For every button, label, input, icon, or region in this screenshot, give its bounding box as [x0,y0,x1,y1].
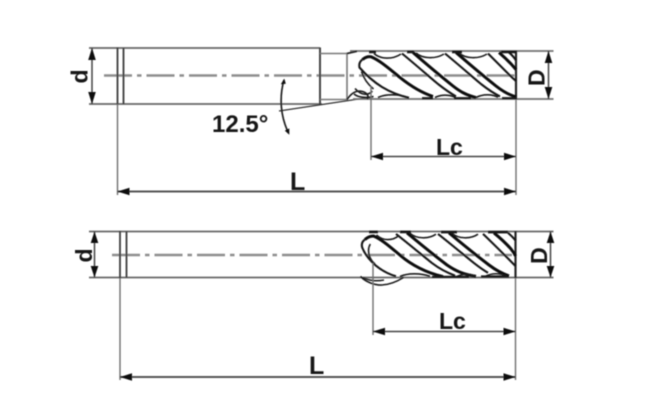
svg-text:d: d [71,248,97,262]
svg-text:Lc: Lc [436,134,463,160]
svg-text:L: L [290,168,305,196]
svg-text:Lc: Lc [439,308,466,334]
svg-text:12.5°: 12.5° [212,111,268,138]
svg-text:d: d [67,69,93,83]
svg-text:D: D [526,247,552,264]
svg-text:L: L [309,352,324,380]
svg-text:D: D [524,69,550,86]
